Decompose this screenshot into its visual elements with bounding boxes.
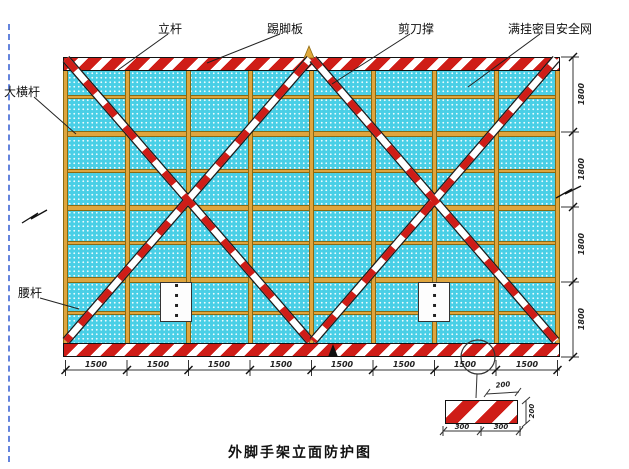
dim-lift-2: 1800: [577, 154, 587, 184]
callout-waist-rail: 腰杆: [18, 284, 42, 301]
callout-toe-board: 踢脚板: [267, 20, 303, 37]
dim-bay-6: 1500: [389, 360, 419, 369]
dim-bay-5: 1500: [327, 360, 357, 369]
linework-overlay: [0, 0, 629, 469]
dim-lift-1: 1800: [577, 79, 587, 109]
toe-board-detail: [445, 400, 518, 424]
detail-dim-right: 300: [486, 423, 516, 431]
detail-dim-left: 300: [447, 423, 477, 431]
break-mark-left: [22, 210, 47, 223]
dim-bay-7: 1500: [450, 360, 480, 369]
dim-bay-3: 1500: [204, 360, 234, 369]
detail-leader: [476, 374, 477, 398]
scissor-brace-right-x: [313, 59, 556, 341]
scissor-brace-left-x: [66, 59, 310, 341]
dim-bay-2: 1500: [143, 360, 173, 369]
dim-bay-8: 1500: [512, 360, 542, 369]
dim-lift-4: 1800: [577, 304, 587, 334]
drawing-title: 外脚手架立面防护图: [180, 442, 420, 462]
scaffold-elevation-diagram: ▪▪▪▪ ▪▪▪▪: [0, 0, 629, 469]
dim-bay-1: 1500: [81, 360, 111, 369]
dim-lift-3: 1800: [577, 229, 587, 259]
callout-main-ledger: 大横杆: [4, 83, 40, 100]
callout-safety-net: 满挂密目安全网: [508, 20, 592, 37]
bottom-dimension-line: [63, 360, 560, 376]
brace-junction-mark: [328, 344, 338, 357]
detail-dim-side: 200: [528, 400, 536, 422]
break-mark-right: [556, 186, 581, 198]
callout-scissor-brace: 剪刀撑: [398, 20, 434, 37]
dim-bay-4: 1500: [266, 360, 296, 369]
callout-pole: 立杆: [158, 20, 182, 37]
pole-tip: [304, 46, 314, 58]
